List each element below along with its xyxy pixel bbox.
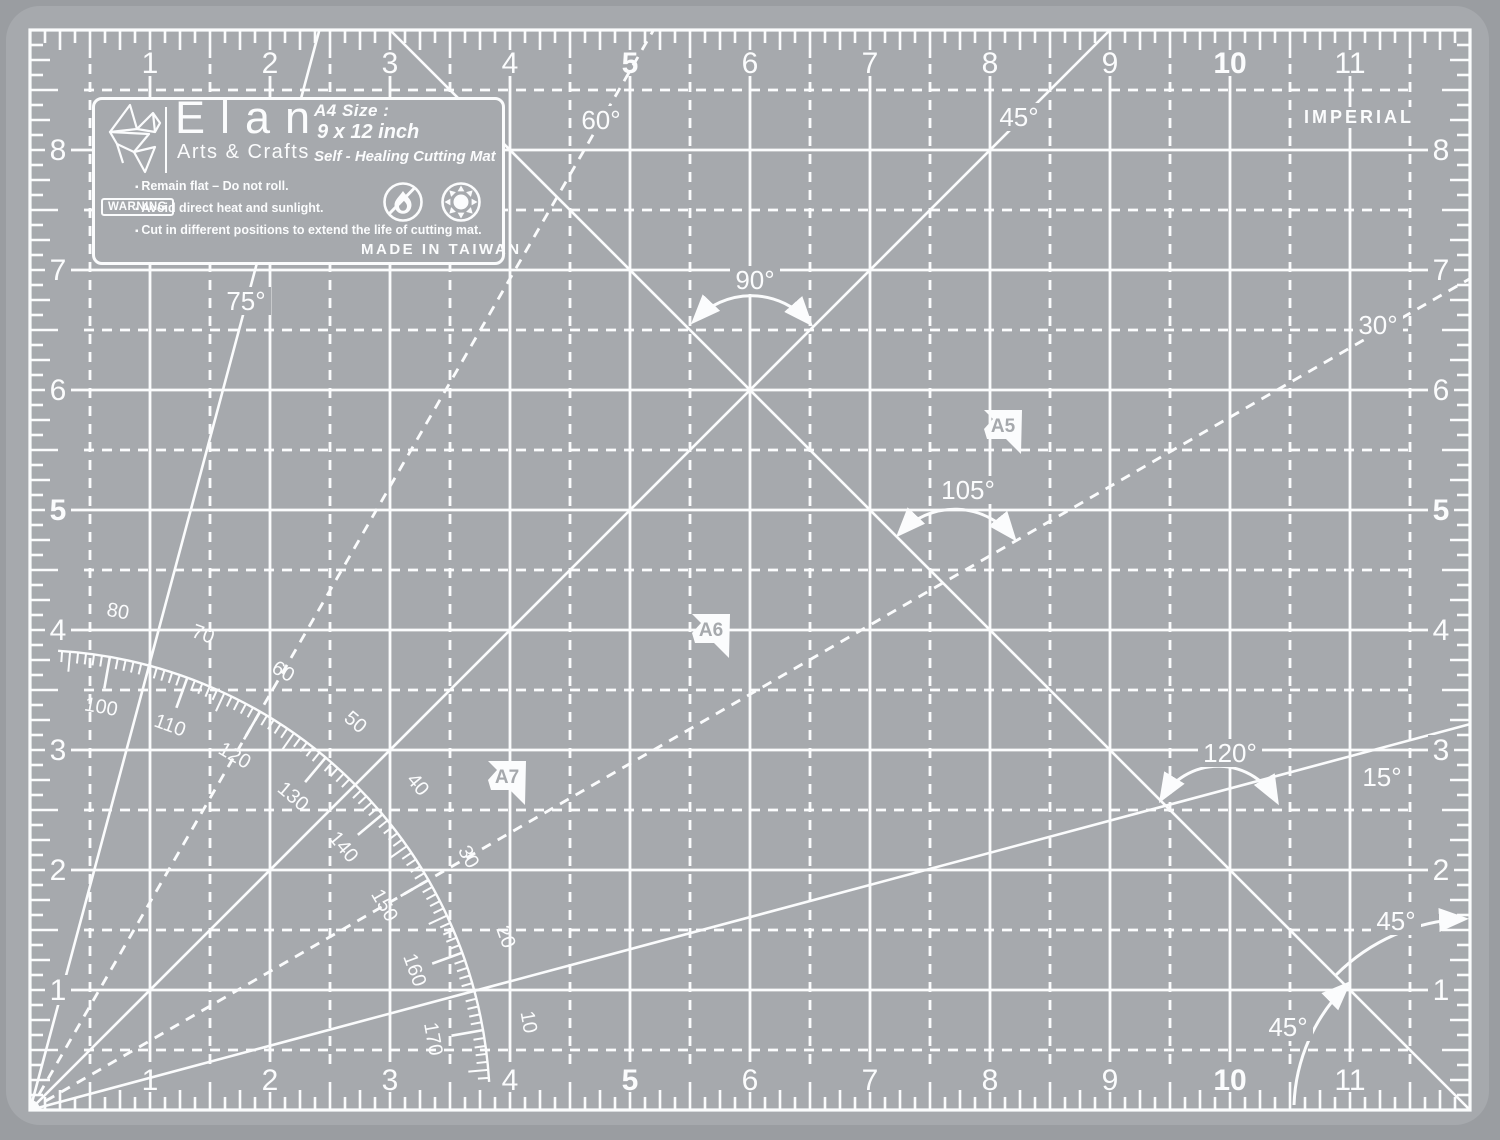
svg-text:8: 8 — [50, 134, 67, 167]
svg-text:45°: 45° — [1268, 1012, 1307, 1042]
care-instruction: Avoid direct heat and sunlight. — [135, 198, 482, 220]
svg-text:7: 7 — [1433, 254, 1450, 287]
svg-text:5: 5 — [622, 47, 639, 80]
svg-text:45°: 45° — [999, 102, 1038, 132]
svg-text:8: 8 — [1433, 134, 1450, 167]
svg-text:7: 7 — [862, 1064, 879, 1097]
svg-text:A5: A5 — [991, 416, 1016, 437]
care-instruction: Remain flat – Do not roll. — [135, 176, 482, 198]
svg-text:2: 2 — [262, 47, 279, 80]
svg-text:9: 9 — [1102, 1064, 1119, 1097]
svg-text:4: 4 — [50, 614, 67, 647]
svg-text:8: 8 — [982, 47, 999, 80]
svg-text:8: 8 — [982, 1064, 999, 1097]
svg-text:7: 7 — [862, 47, 879, 80]
size-title: A4 Size : — [314, 101, 389, 121]
care-instructions: Remain flat – Do not roll. Avoid direct … — [135, 176, 482, 242]
svg-text:30°: 30° — [1358, 310, 1397, 340]
origami-bird-logo — [100, 101, 162, 181]
svg-text:3: 3 — [50, 734, 67, 767]
svg-text:6: 6 — [742, 47, 759, 80]
logo-divider — [165, 107, 167, 173]
svg-text:90°: 90° — [735, 265, 774, 295]
imperial-label: IMPERIAL — [1299, 107, 1419, 128]
svg-text:3: 3 — [382, 1064, 399, 1097]
svg-text:5: 5 — [50, 494, 67, 527]
no-sunlight-icon — [439, 180, 483, 224]
svg-text:10: 10 — [1213, 1064, 1246, 1097]
svg-text:4: 4 — [1433, 614, 1450, 647]
svg-text:80: 80 — [105, 599, 131, 625]
svg-text:105°: 105° — [941, 475, 995, 505]
brand-plate: Elan Arts & Crafts A4 Size : 9 x 12 inch… — [92, 97, 505, 265]
brand-subtitle: Arts & Crafts — [177, 141, 310, 164]
svg-text:6: 6 — [50, 374, 67, 407]
svg-text:5: 5 — [1433, 494, 1450, 527]
svg-text:45°: 45° — [1376, 906, 1415, 936]
svg-text:2: 2 — [1433, 854, 1450, 887]
svg-text:10: 10 — [1213, 47, 1246, 80]
svg-text:5: 5 — [622, 1064, 639, 1097]
product-type: Self - Healing Cutting Mat — [314, 148, 496, 165]
svg-text:1: 1 — [50, 974, 67, 1007]
svg-text:3: 3 — [382, 47, 399, 80]
size-dimensions: 9 x 12 inch — [317, 121, 419, 144]
svg-text:120°: 120° — [1203, 738, 1257, 768]
svg-text:11: 11 — [1334, 47, 1365, 80]
svg-text:75°: 75° — [226, 286, 265, 316]
brand-name: Elan — [175, 92, 325, 144]
svg-text:A6: A6 — [699, 620, 723, 641]
svg-text:4: 4 — [502, 1064, 519, 1097]
svg-text:1: 1 — [142, 1064, 159, 1097]
svg-text:15°: 15° — [1362, 762, 1401, 792]
svg-text:1: 1 — [142, 47, 159, 80]
cutting-mat-photo: 1020304050607080100110120130140150160170… — [0, 0, 1500, 1140]
svg-text:60°: 60° — [581, 105, 620, 135]
svg-text:4: 4 — [502, 47, 519, 80]
svg-text:9: 9 — [1102, 47, 1119, 80]
made-in-label: MADE IN TAIWAN — [361, 241, 522, 258]
svg-text:A7: A7 — [495, 767, 519, 788]
svg-text:10: 10 — [516, 1009, 542, 1035]
svg-text:2: 2 — [50, 854, 67, 887]
svg-text:7: 7 — [50, 254, 67, 287]
svg-text:11: 11 — [1334, 1064, 1365, 1097]
svg-text:6: 6 — [742, 1064, 759, 1097]
svg-text:2: 2 — [262, 1064, 279, 1097]
care-instruction: Cut in different positions to extend the… — [135, 220, 482, 242]
svg-text:3: 3 — [1433, 734, 1450, 767]
no-open-flame-icon — [381, 180, 425, 224]
svg-text:1: 1 — [1433, 974, 1450, 1007]
svg-text:6: 6 — [1433, 374, 1450, 407]
